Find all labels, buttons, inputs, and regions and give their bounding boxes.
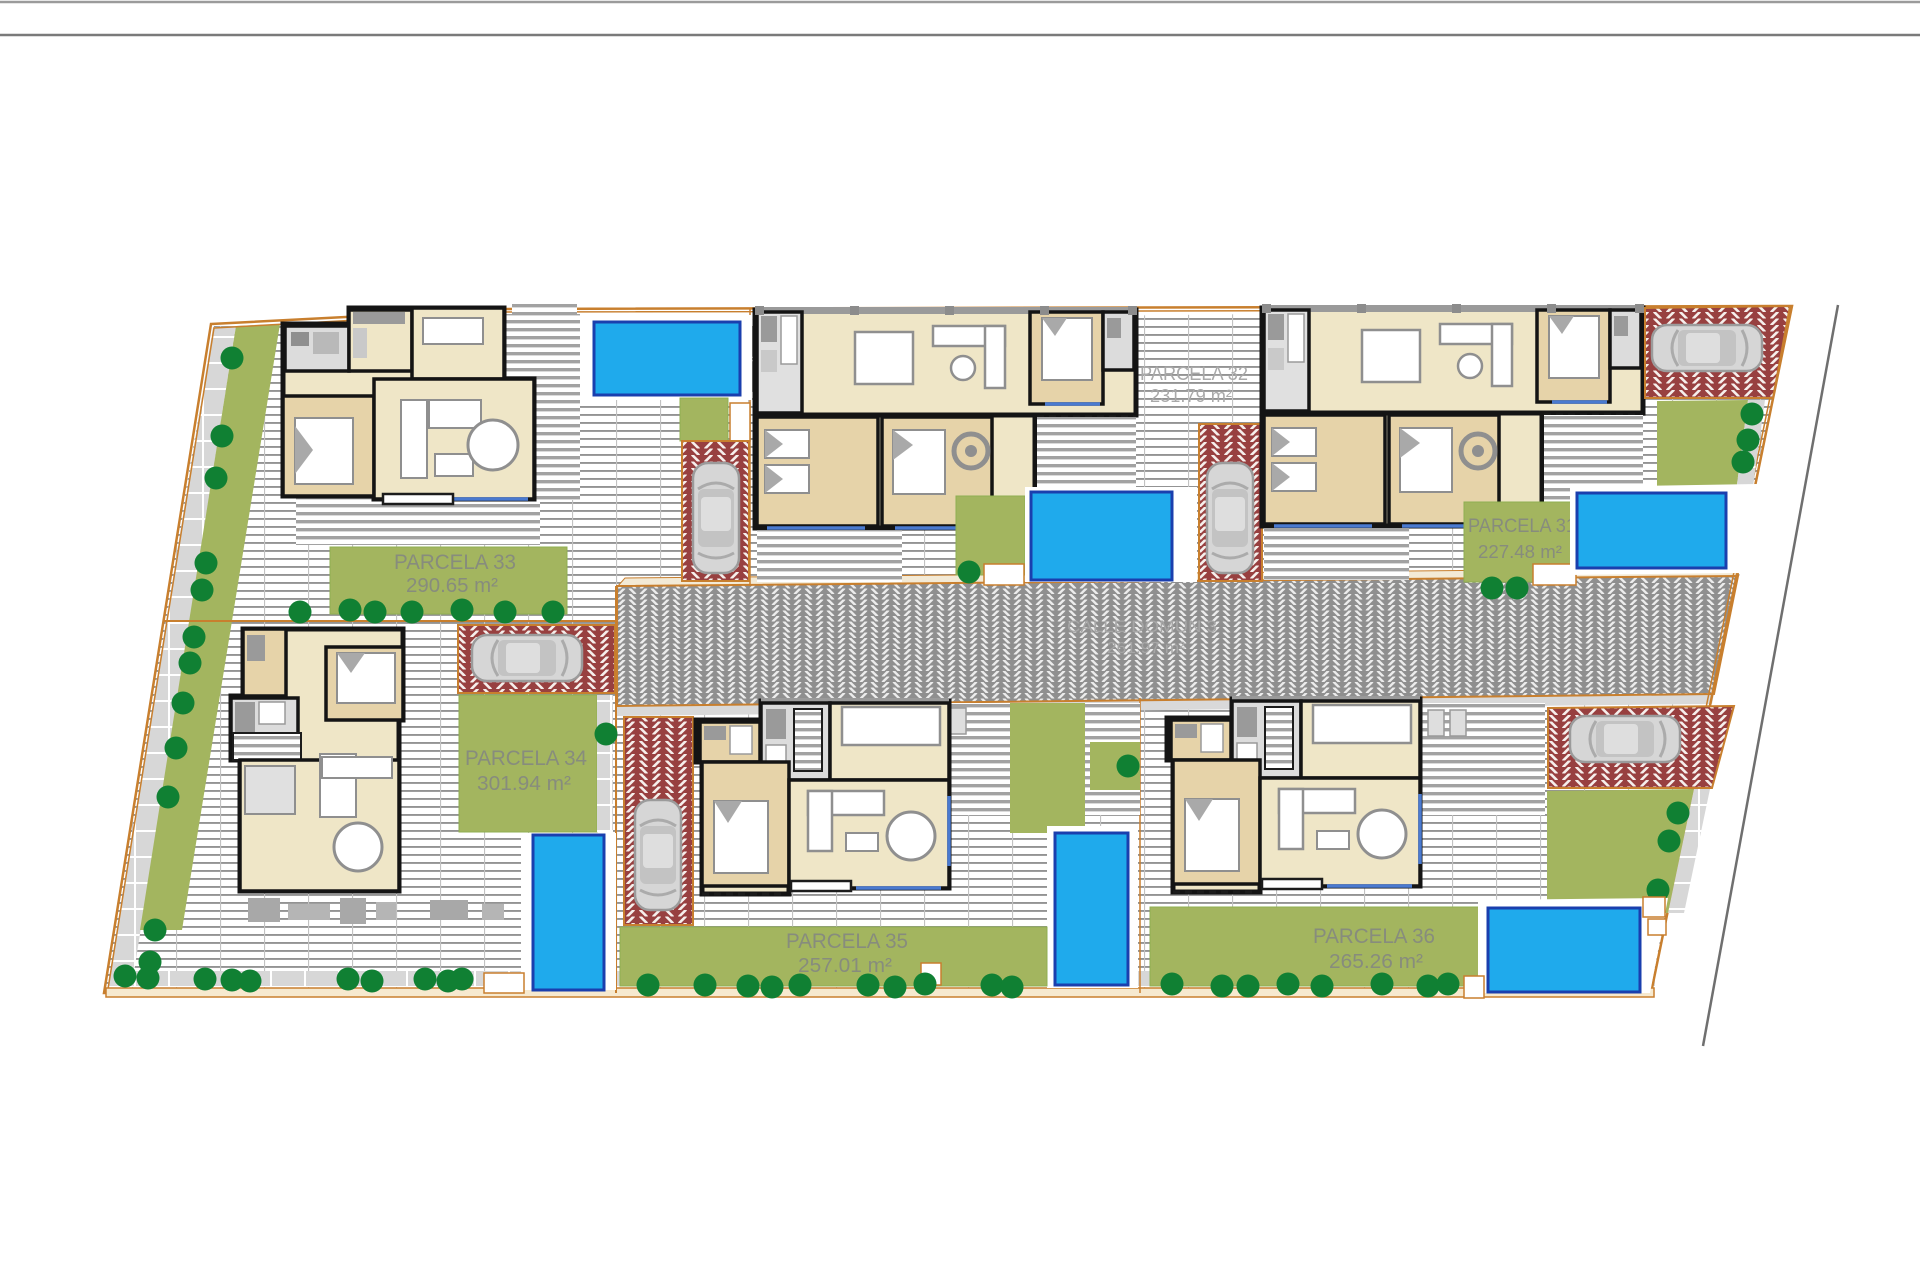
svg-text:301.94 m²: 301.94 m² — [477, 773, 571, 795]
svg-text:261.97 m²: 261.97 m² — [1107, 640, 1186, 657]
svg-text:PARCELA 31: PARCELA 31 — [1468, 516, 1576, 537]
svg-text:PARCELA 32: PARCELA 32 — [1140, 364, 1248, 385]
svg-text:PARCELA 33: PARCELA 33 — [394, 551, 516, 574]
svg-text:257.01 m²: 257.01 m² — [798, 955, 892, 977]
svg-text:CALLE DOMUN 3: CALLE DOMUN 3 — [1067, 617, 1217, 636]
svg-text:290.65 m²: 290.65 m² — [406, 575, 498, 597]
svg-text:PARCELA 36: PARCELA 36 — [1313, 925, 1435, 948]
svg-text:227.48 m²: 227.48 m² — [1478, 542, 1562, 562]
svg-text:265.26 m²: 265.26 m² — [1329, 951, 1423, 973]
svg-text:PARCELA 34: PARCELA 34 — [465, 747, 587, 770]
svg-text:231.79 m²: 231.79 m² — [1150, 386, 1232, 406]
svg-text:PARCELA 35: PARCELA 35 — [786, 930, 908, 953]
